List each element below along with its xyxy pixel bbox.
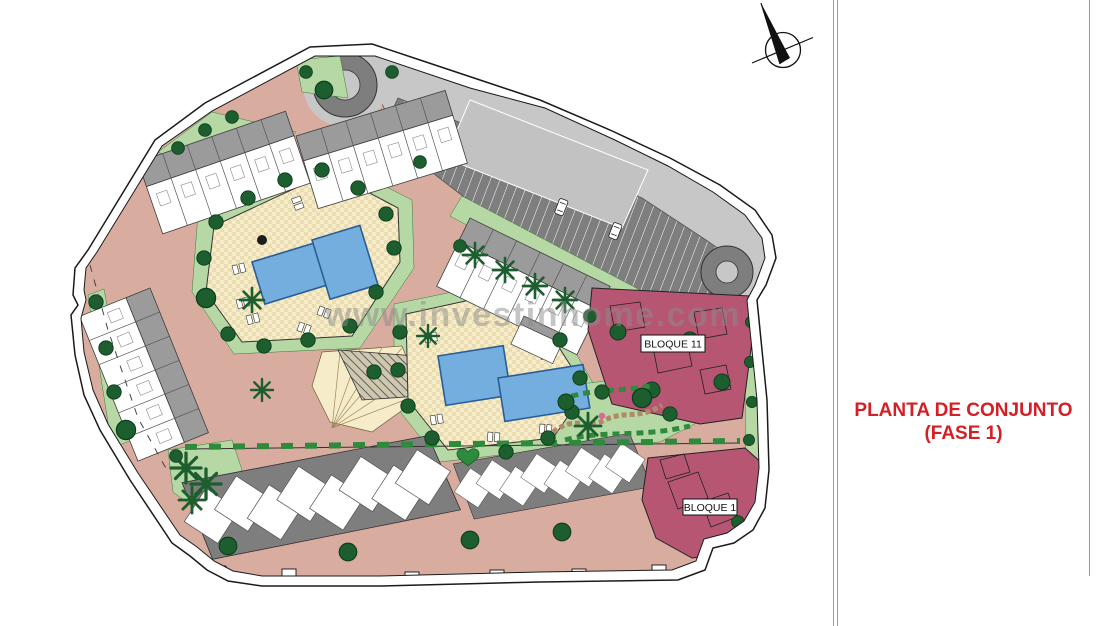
panel-divider-line-1 <box>833 0 834 626</box>
title-block: PLANTA DE CONJUNTO (FASE 1) <box>838 399 1089 445</box>
site-plan-sheet: BLOQUE 11 BLOQUE 1 www.investinhome.com … <box>0 0 1110 626</box>
sheet-subtitle: (FASE 1) <box>838 422 1089 445</box>
roundabout-east <box>701 246 753 298</box>
bloque-1-label: BLOQUE 1 <box>683 499 737 515</box>
site-plan-drawing: BLOQUE 11 BLOQUE 1 www.investinhome.com <box>0 0 1110 626</box>
bloque-1-label-text: BLOQUE 1 <box>684 502 737 514</box>
bloque-11-label: BLOQUE 11 <box>641 335 705 352</box>
north-arrow-icon <box>752 3 813 68</box>
sheet-title: PLANTA DE CONJUNTO <box>838 399 1089 422</box>
panel-divider-line-2 <box>837 0 838 626</box>
panel-divider-line-3 <box>1089 0 1090 576</box>
watermark: www.investinhome.com <box>324 296 741 334</box>
bloque-11-label-text: BLOQUE 11 <box>644 339 702 351</box>
